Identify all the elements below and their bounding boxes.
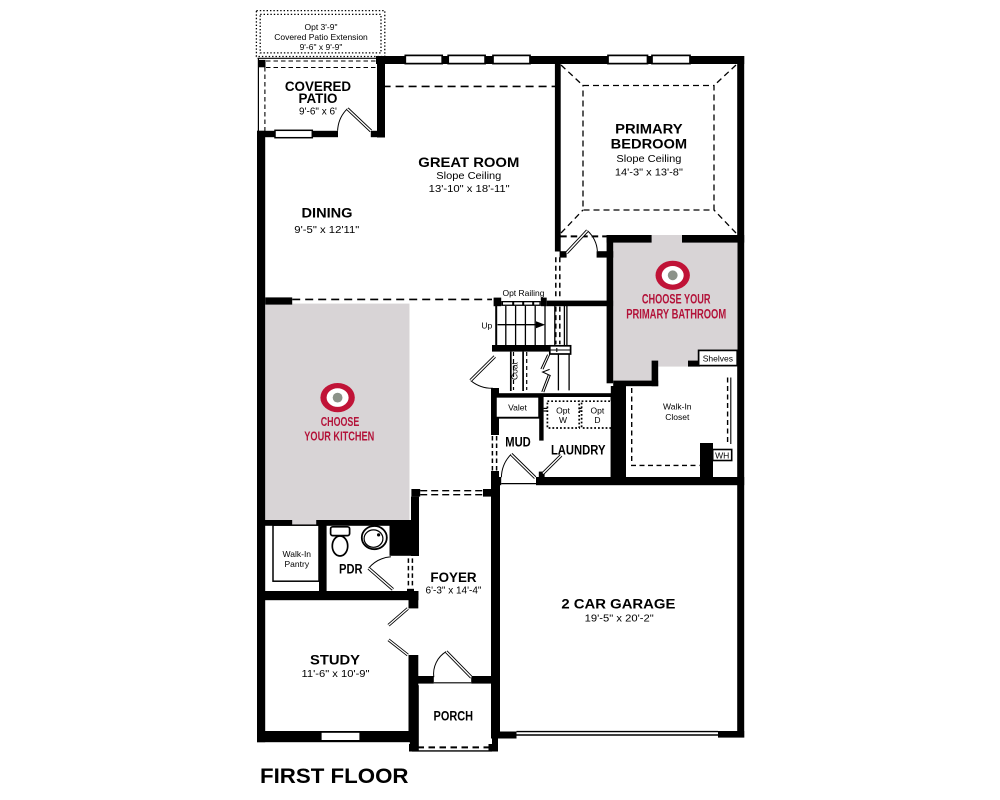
svg-text:Slope Ceiling: Slope Ceiling: [616, 154, 681, 165]
svg-text:14'-3" x 13'-8": 14'-3" x 13'-8": [615, 167, 683, 178]
svg-text:Valet: Valet: [508, 403, 527, 413]
svg-text:W: W: [559, 415, 567, 425]
svg-text:Shelves: Shelves: [703, 353, 733, 363]
svg-text:13'-10" x 18'-11": 13'-10" x 18'-11": [429, 184, 511, 195]
svg-text:11'-6" x 10'-9": 11'-6" x 10'-9": [302, 669, 370, 680]
svg-text:LAUNDRY: LAUNDRY: [551, 443, 606, 458]
svg-text:Pantry: Pantry: [285, 559, 310, 569]
svg-text:9'-6" x 6': 9'-6" x 6': [299, 107, 337, 118]
svg-text:2 CAR GARAGE: 2 CAR GARAGE: [561, 597, 675, 612]
svg-text:9'-5" x 12'11": 9'-5" x 12'11": [294, 225, 360, 236]
svg-text:FOYER: FOYER: [430, 570, 476, 585]
svg-text:MUD: MUD: [505, 434, 531, 449]
svg-text:PRIMARY BATHROOM: PRIMARY BATHROOM: [626, 306, 726, 321]
svg-text:Up: Up: [481, 320, 492, 330]
svg-text:BEDROOM: BEDROOM: [611, 136, 688, 151]
svg-text:Coat: Coat: [509, 361, 519, 380]
svg-text:D: D: [594, 415, 600, 425]
svg-text:CHOOSE YOUR: CHOOSE YOUR: [642, 292, 711, 307]
svg-text:PATIO: PATIO: [299, 91, 338, 106]
svg-text:STUDY: STUDY: [310, 653, 360, 668]
svg-text:9'-6" x 9'-9": 9'-6" x 9'-9": [300, 42, 343, 52]
svg-text:FIRST FLOOR: FIRST FLOOR: [260, 764, 409, 788]
svg-text:YOUR KITCHEN: YOUR KITCHEN: [304, 428, 374, 443]
svg-text:GREAT ROOM: GREAT ROOM: [418, 155, 519, 170]
svg-text:Covered Patio Extension: Covered Patio Extension: [274, 32, 368, 42]
svg-text:PDR: PDR: [339, 561, 363, 576]
svg-text:DINING: DINING: [302, 206, 353, 221]
svg-text:Walk-In: Walk-In: [283, 549, 312, 559]
svg-text:Walk-In: Walk-In: [663, 402, 692, 412]
svg-text:Opt Railing: Opt Railing: [502, 288, 544, 298]
svg-text:Slope Ceiling: Slope Ceiling: [436, 171, 501, 182]
svg-text:6'-3" x 14'-4": 6'-3" x 14'-4": [426, 585, 482, 596]
svg-text:CHOOSE: CHOOSE: [321, 414, 360, 429]
svg-text:Closet: Closet: [665, 412, 690, 422]
svg-text:19'-5" x 20'-2": 19'-5" x 20'-2": [585, 613, 654, 624]
svg-text:Opt: Opt: [556, 405, 570, 415]
svg-text:Opt 3'-9": Opt 3'-9": [305, 22, 338, 32]
svg-text:PORCH: PORCH: [434, 709, 474, 724]
svg-text:PRIMARY: PRIMARY: [615, 122, 683, 137]
svg-text:WH: WH: [715, 451, 729, 461]
svg-text:Opt: Opt: [591, 405, 605, 415]
